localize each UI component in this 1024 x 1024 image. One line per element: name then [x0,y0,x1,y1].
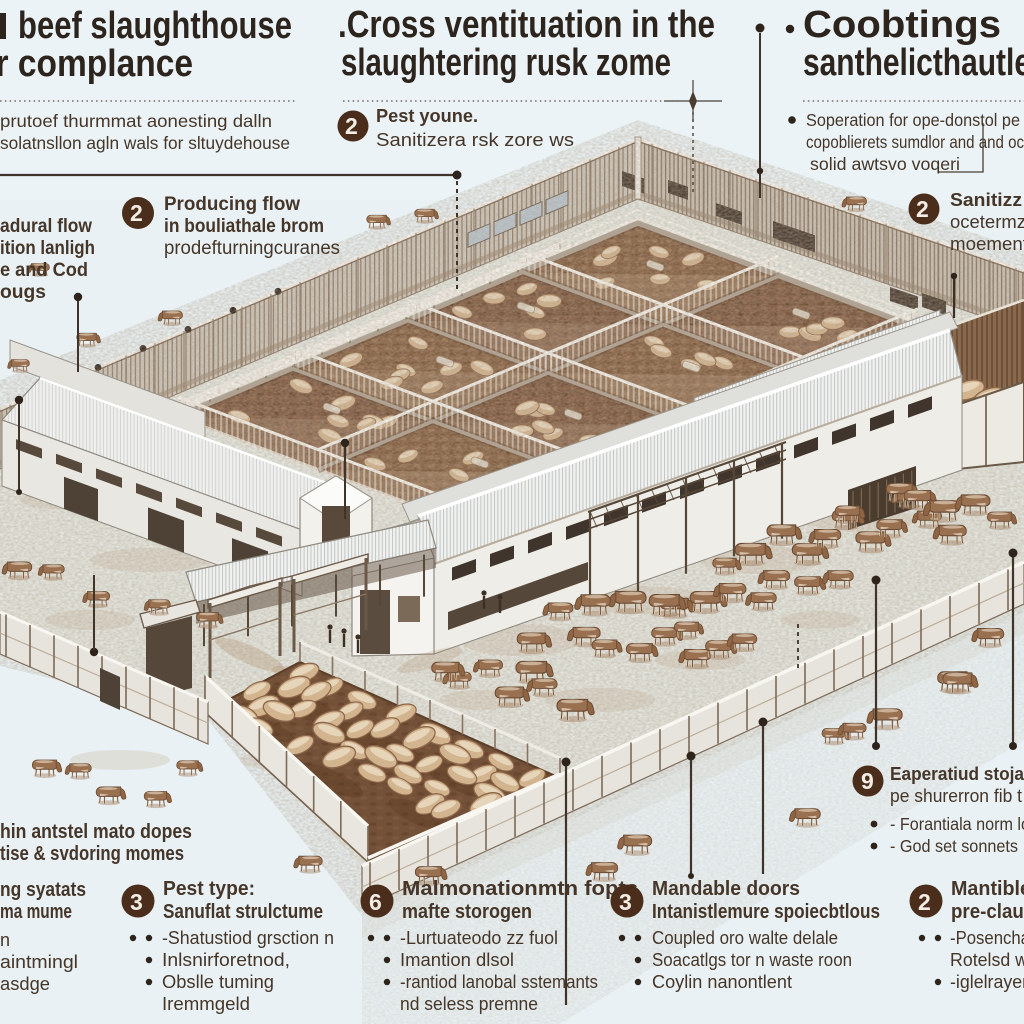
svg-text:2: 2 [345,113,358,139]
svg-text:hin antstel mato dopes: hin antstel mato dopes [0,821,192,843]
svg-text:Sanuflat strulctume: Sanuflat strulctume [163,901,323,923]
svg-text:Producing flow: Producing flow [164,194,300,215]
svg-text:tise & svdoring momes: tise & svdoring momes [0,843,184,865]
svg-text:slaughtering rusk zome: slaughtering rusk zome [341,42,671,84]
svg-text:ng syatats: ng syatats [0,879,86,901]
svg-text:or complance: or complance [0,43,193,85]
svg-text:-Shatustiod grsction n: -Shatustiod grsction n [162,928,334,948]
svg-text:Intanistlemure spoiecbtlous: Intanistlemure spoiecbtlous [652,901,880,923]
svg-text:n: n [0,930,10,950]
svg-text:Sanitizera rsk zore ws: Sanitizera rsk zore ws [376,130,574,150]
svg-text:prodefturningcuranes: prodefturningcuranes [164,238,340,259]
svg-text:pre-claul: pre-claul [951,901,1024,923]
svg-text:-Lurtuateodo zz fuol: -Lurtuateodo zz fuol [400,928,558,948]
svg-text:- God set sonnets: - God set sonnets [890,836,1018,856]
svg-text:asdge: asdge [0,974,50,994]
svg-text:ition lanligh: ition lanligh [0,238,95,259]
svg-text:copoblierets sumdlor and and o: copoblierets sumdlor and and oc [806,132,1024,152]
svg-text:adural flow: adural flow [0,216,92,237]
svg-text:ougs: ougs [0,282,46,303]
svg-text:Coylin nanontlent: Coylin nanontlent [652,972,792,992]
svg-text:Obslle tuming: Obslle tuming [162,972,274,992]
svg-text:.Cross ventituation in the: .Cross ventituation in the [338,4,715,46]
svg-text:Iremmgeld: Iremmgeld [162,994,250,1014]
svg-text:Mantible: Mantible [951,878,1024,900]
svg-text:Inlsnirforetnod,: Inlsnirforetnod, [162,950,290,970]
svg-text:Soacatlgs tor n waste roon: Soacatlgs tor n waste roon [652,950,852,970]
svg-text:santhelicthautle: santhelicthautle [803,42,1024,84]
svg-text:Rotelsd w: Rotelsd w [950,950,1024,970]
svg-text:ocetermz: ocetermz [950,212,1024,232]
svg-text:2: 2 [918,889,931,915]
svg-text:e and Cod: e and Cod [0,260,88,281]
svg-text:solid awtsvo voqeri: solid awtsvo voqeri [810,154,960,174]
svg-text:prutoef thurmmat aonesting dal: prutoef thurmmat aonesting dalln [0,111,272,131]
svg-text:2: 2 [130,200,143,226]
svg-text:3: 3 [130,889,143,915]
svg-text:2: 2 [916,196,929,222]
svg-text:in bouliathale brom: in bouliathale brom [164,216,324,237]
svg-text:Coupled oro walte delale: Coupled oro walte delale [652,928,838,948]
svg-text:solatnsllon agln wals for sltu: solatnsllon agln wals for sltuydehouse [0,133,290,153]
svg-text:6: 6 [369,889,382,915]
svg-text:aintmingl: aintmingl [0,952,78,972]
svg-text:-iglelrayen: -iglelrayen [950,972,1024,992]
svg-text:Malmonationmtn fopts: Malmonationmtn fopts [402,878,638,900]
svg-text:mafte storogen: mafte storogen [402,901,532,923]
svg-text:Coobtings: Coobtings [803,4,1001,46]
svg-text:moement: moement [950,234,1024,254]
svg-text:Pest type:: Pest type: [163,878,255,900]
svg-text:Sanitizz: Sanitizz [950,190,1022,210]
svg-text:ma mume: ma mume [0,901,72,923]
svg-text:- Forantiala norm lo: - Forantiala norm lo [890,814,1024,834]
svg-text:Mandable doors: Mandable doors [652,878,800,900]
svg-text:beef slaughthouse: beef slaughthouse [18,5,292,47]
svg-text:Soperation for ope-donstol pe: Soperation for ope-donstol pe [806,110,1020,130]
svg-text:pe shurerron fib t: pe shurerron fib t [890,786,1022,806]
svg-text:nd seless premne: nd seless premne [400,994,538,1014]
svg-text:Imantion dlsol: Imantion dlsol [400,950,514,970]
svg-text:9: 9 [861,768,874,794]
svg-text:-rantiod lanobal sstemants: -rantiod lanobal sstemants [400,972,598,992]
svg-text:Eaperatiud stoja: Eaperatiud stoja [890,764,1024,784]
svg-text:Pest youne.: Pest youne. [376,106,478,126]
svg-text:3: 3 [619,889,632,915]
svg-text:-Posencha: -Posencha [950,928,1024,948]
